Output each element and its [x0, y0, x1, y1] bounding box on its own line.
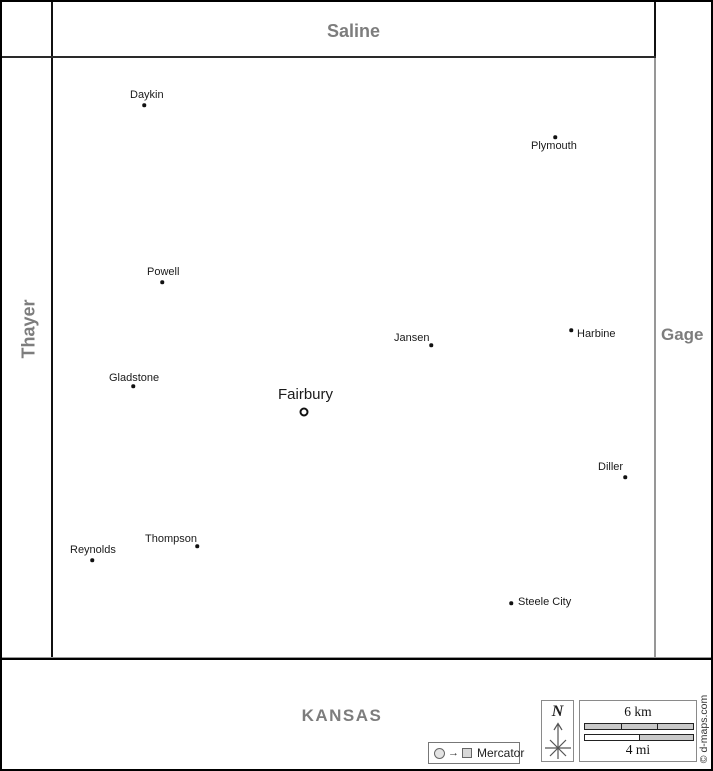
copyright-text: © d-maps.com	[698, 695, 710, 763]
county-seat-marker-fairbury	[299, 407, 308, 416]
border-line-left	[51, 2, 53, 659]
county-map: Saline Thayer Gage KANSAS Daykin Plymout…	[0, 0, 713, 771]
border-line-right	[654, 57, 656, 659]
town-label-powell: Powell	[147, 266, 179, 278]
town-dot-reynolds	[90, 558, 94, 562]
town-dot-diller	[623, 475, 627, 479]
town-dot-gladstone	[131, 384, 135, 388]
projection-name: Mercator	[477, 746, 524, 760]
town-label-thompson: Thompson	[145, 533, 197, 545]
border-line-bottom	[2, 657, 713, 660]
town-dot-daykin	[142, 103, 146, 107]
town-dot-steele-city	[509, 601, 513, 605]
county-seat-label-fairbury: Fairbury	[278, 386, 333, 403]
town-dot-powell	[160, 280, 164, 284]
region-label-thayer: Thayer	[19, 299, 40, 358]
north-arrow-box: N	[541, 700, 574, 762]
compass-north-arrow-icon	[543, 721, 573, 761]
town-dot-harbine	[569, 328, 573, 332]
town-label-harbine: Harbine	[577, 328, 616, 340]
projection-legend: → Mercator	[428, 742, 520, 764]
town-dot-plymouth	[553, 135, 557, 139]
town-label-daykin: Daykin	[130, 89, 164, 101]
region-label-saline: Saline	[52, 21, 655, 42]
scale-bar-mi	[584, 734, 694, 741]
town-label-diller: Diller	[598, 461, 623, 473]
globe-circle-icon	[434, 748, 445, 759]
border-line-top	[2, 56, 656, 58]
flat-square-icon	[462, 748, 472, 758]
town-label-plymouth: Plymouth	[531, 140, 577, 152]
region-label-gage: Gage	[661, 325, 704, 345]
scale-bar-box: 6 km 4 mi	[579, 700, 697, 762]
town-label-steele-city: Steele City	[518, 596, 571, 608]
town-label-reynolds: Reynolds	[70, 544, 116, 556]
right-arrow-icon: →	[448, 748, 459, 759]
north-label: N	[542, 701, 573, 721]
town-dot-jansen	[429, 343, 433, 347]
scale-mi-label: 4 mi	[580, 742, 696, 758]
scale-km-label: 6 km	[580, 704, 696, 720]
scale-bar-km	[584, 723, 694, 730]
town-label-gladstone: Gladstone	[109, 372, 159, 384]
town-label-jansen: Jansen	[394, 332, 429, 344]
region-label-kansas: KANSAS	[242, 706, 442, 726]
